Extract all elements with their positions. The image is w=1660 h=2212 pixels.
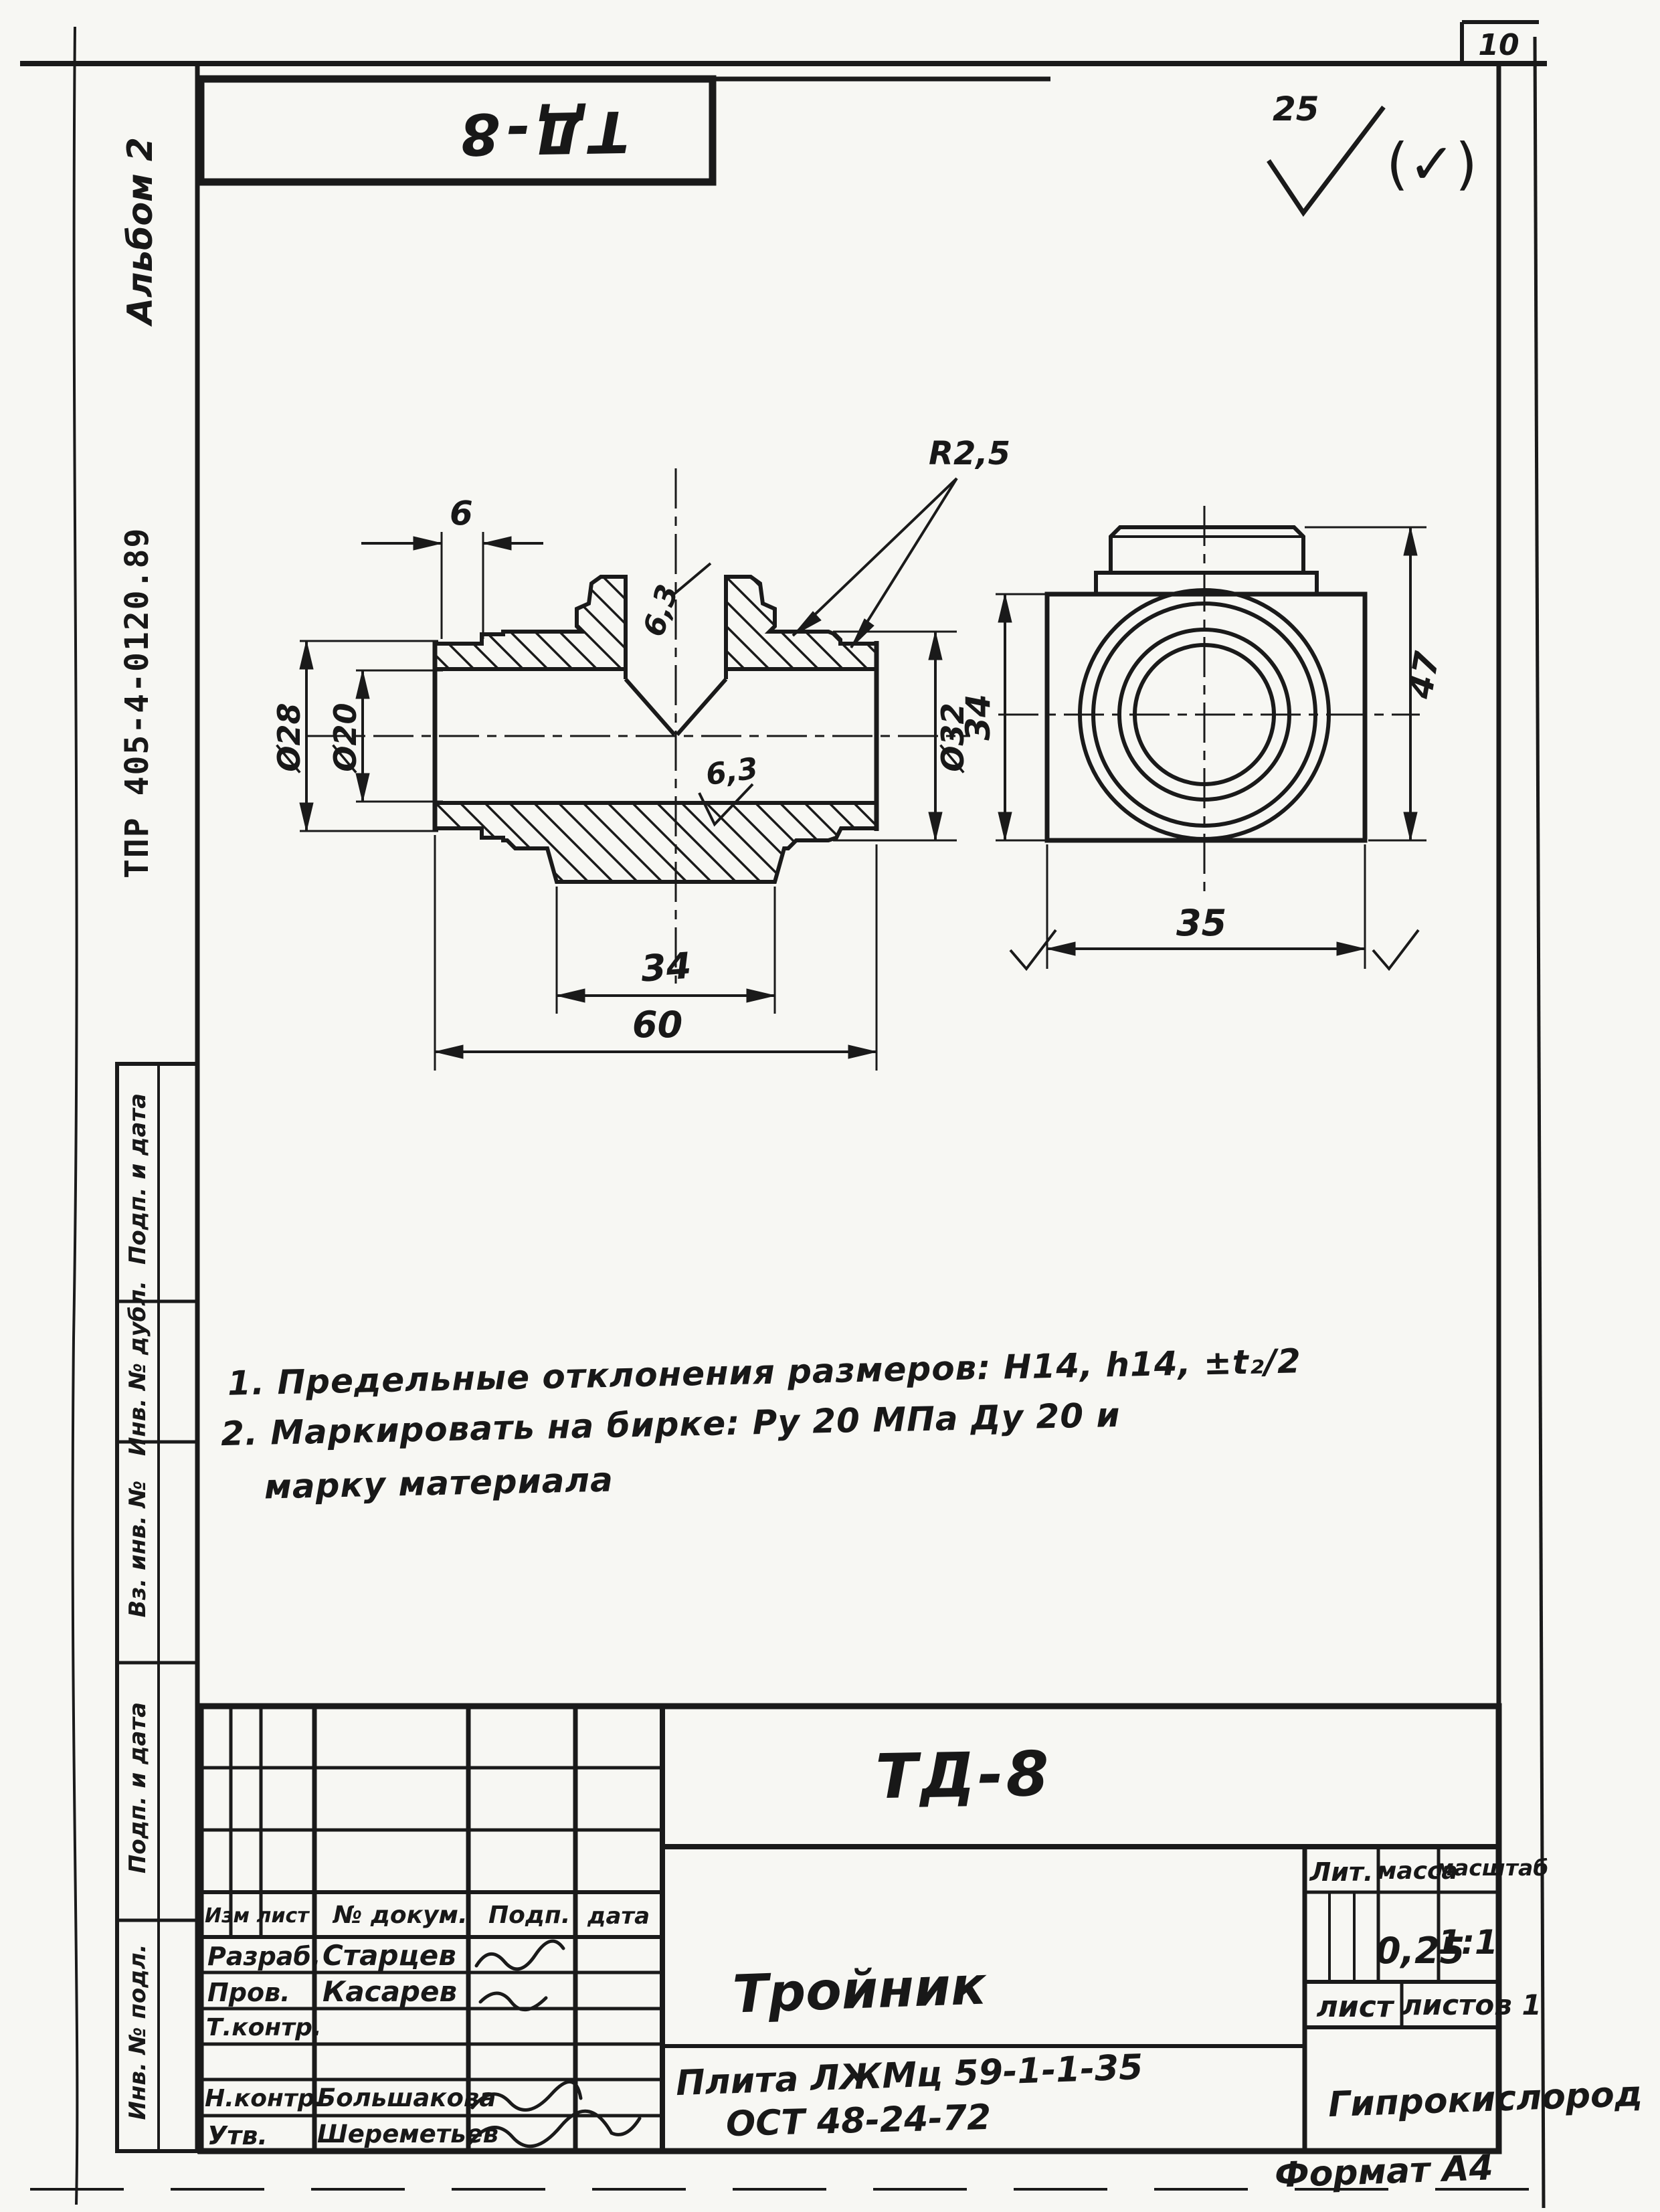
dim-label-60: 60	[632, 1004, 682, 1046]
dim-collar-6	[361, 532, 543, 639]
row-role-utv: Утв.	[207, 2121, 268, 2150]
section-view	[300, 468, 970, 1071]
margin-album: Альбом 2	[120, 130, 161, 331]
margin-cell-label: Подп. и дата	[124, 1072, 151, 1286]
row-role-razrab: Разраб.	[207, 1942, 320, 1971]
row-role-prov: Пров.	[207, 1978, 290, 2007]
margin-cell-label: Подп. и дата	[124, 1681, 151, 1895]
note-line3: марку материала	[264, 1461, 614, 1507]
dim-label-35: 35	[1176, 902, 1226, 944]
row-name-utv: Шереметьев	[317, 2120, 498, 2148]
end-view	[996, 506, 1426, 969]
header-doc: № докум.	[333, 1902, 468, 1929]
top-stamp-code: ТД-8	[421, 97, 663, 167]
dim-square-34	[996, 594, 1050, 840]
mass-value: 0,25	[1376, 1930, 1440, 1972]
roughness-value: 25	[1273, 90, 1319, 128]
header-sign: Подп.	[488, 1902, 570, 1929]
titleblock-material-2: ОСТ 48-24-72	[725, 2098, 992, 2144]
format-note: Формат А4	[1274, 2148, 1494, 2195]
leader-fillet-radius	[793, 478, 957, 648]
header-izm-list: Изм лист	[205, 1904, 309, 1928]
titleblock-doc-number: ТД-8	[856, 1738, 1071, 1813]
header-date: дата	[587, 1903, 650, 1930]
margin-cell-label: Инв. № подл.	[124, 1925, 151, 2139]
dim-label-square34: 34	[959, 650, 998, 784]
row-name-razrab: Старцев	[322, 1939, 456, 1972]
mass-label: масса	[1377, 1857, 1439, 1885]
titleblock-part-name: Тройник	[732, 1956, 988, 2025]
sheet-label: лист	[1308, 1990, 1402, 2024]
row-role-tkontr: Т.контр.	[206, 2014, 322, 2041]
margin-cell-label: Вз. инв. №	[124, 1442, 151, 1656]
section-hatch-top-left	[435, 577, 626, 669]
drawing-sheet: 10 Формат А4 ТД-8 25 (✓) Альбом 2 ТПР 40…	[0, 0, 1660, 2212]
scale-label: масштаб	[1436, 1855, 1500, 1881]
dim-label-rough-bottom: 6,3	[704, 751, 760, 792]
row-name-prov: Касарев	[322, 1975, 457, 2008]
row-name-nkontr: Большакова	[317, 2084, 496, 2112]
scale-value: 1:1	[1437, 1923, 1499, 1962]
section-hatch-bottom	[435, 803, 877, 882]
margin-doc-code: ТПР 405-4-0120.89	[118, 531, 156, 879]
page-number: 10	[1465, 28, 1532, 62]
section-hatch-top-right	[726, 577, 877, 669]
dim-label-6: 6	[450, 494, 473, 533]
dim-label-dia28: Ø28	[271, 670, 307, 804]
signature-razrab	[476, 1941, 563, 1969]
roughness-bracket: (✓)	[1386, 131, 1477, 197]
sheets-label: листов 1	[1402, 1989, 1499, 2021]
lit-label: Лит.	[1306, 1857, 1377, 1887]
dim-label-r25: R2,5	[929, 435, 1010, 472]
dim-label-dia20: Ø20	[327, 670, 363, 804]
dim-label-34: 34	[640, 944, 693, 990]
row-role-nkontr: Н.контр.	[205, 2085, 324, 2112]
